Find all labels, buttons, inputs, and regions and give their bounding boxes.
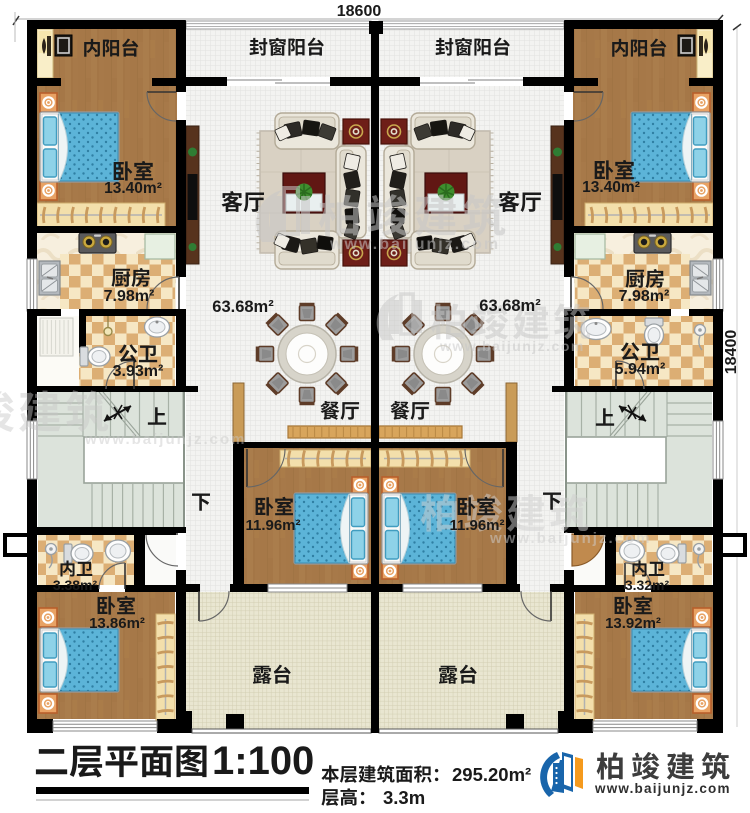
svg-text:13.86m²: 13.86m² bbox=[89, 615, 145, 632]
svg-text:18400: 18400 bbox=[723, 330, 740, 375]
svg-text:3.32m²: 3.32m² bbox=[625, 577, 670, 593]
svg-text:www.baijunjz.com: www.baijunjz.com bbox=[329, 236, 500, 253]
svg-text:13.40m²: 13.40m² bbox=[104, 180, 162, 197]
svg-text:13.40m²: 13.40m² bbox=[582, 179, 640, 196]
svg-text:11.96m²: 11.96m² bbox=[245, 517, 300, 534]
svg-text:18600: 18600 bbox=[337, 3, 382, 20]
svg-text:5.94m²: 5.94m² bbox=[615, 361, 666, 378]
svg-text:63.68m²: 63.68m² bbox=[479, 297, 541, 315]
svg-text:www.baijunjz.com: www.baijunjz.com bbox=[489, 530, 651, 547]
svg-text:13.92m²: 13.92m² bbox=[605, 615, 661, 632]
svg-text:3.3m: 3.3m bbox=[383, 787, 425, 808]
svg-text:295.20m²: 295.20m² bbox=[452, 764, 531, 785]
svg-text:www.baijunjz.com: www.baijunjz.com bbox=[439, 338, 585, 354]
svg-text:www.baijunjz.com: www.baijunjz.com bbox=[84, 431, 246, 448]
svg-text:1:100: 1:100 bbox=[212, 739, 314, 783]
svg-text:3.93m²: 3.93m² bbox=[113, 363, 164, 380]
svg-text:63.68m²: 63.68m² bbox=[212, 298, 274, 316]
svg-text:7.98m²: 7.98m² bbox=[104, 288, 155, 305]
svg-text:3.38m²: 3.38m² bbox=[53, 577, 98, 593]
svg-text:11.96m²: 11.96m² bbox=[449, 517, 504, 534]
svg-text:7.98m²: 7.98m² bbox=[619, 288, 670, 305]
svg-text:www.baijunjz.com: www.baijunjz.com bbox=[594, 781, 731, 796]
